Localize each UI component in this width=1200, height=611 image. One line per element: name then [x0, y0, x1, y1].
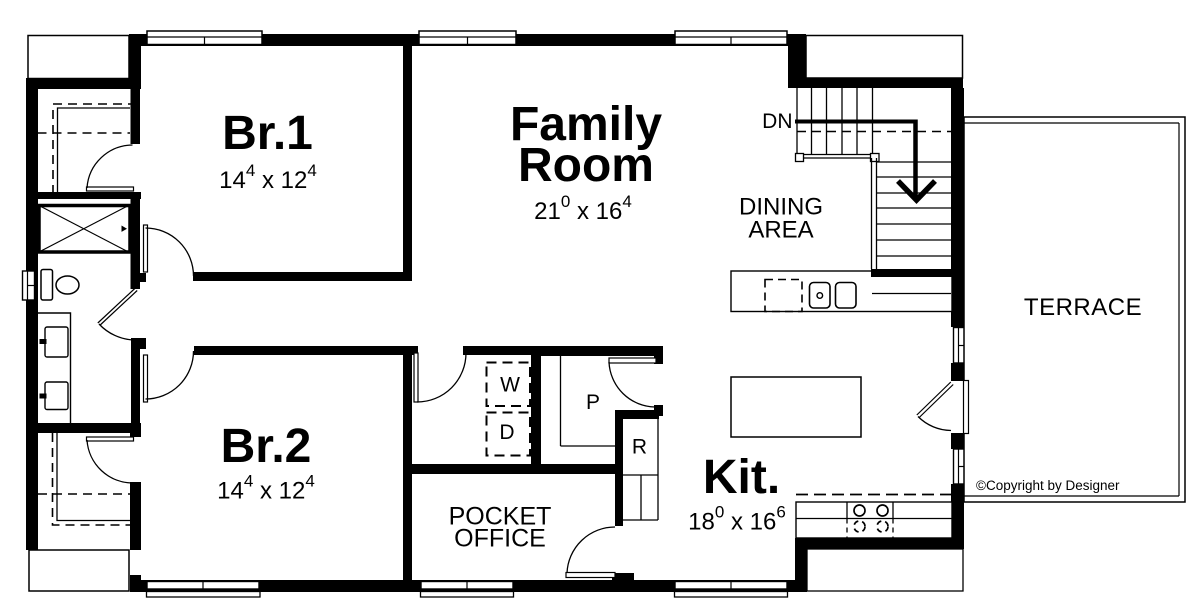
svg-text:P: P [586, 391, 600, 414]
svg-text:OFFICE: OFFICE [454, 525, 546, 553]
svg-text:Br.1: Br.1 [222, 107, 313, 160]
svg-text:TERRACE: TERRACE [1024, 294, 1142, 321]
svg-text:Br.2: Br.2 [221, 420, 312, 473]
svg-text:AREA: AREA [748, 217, 813, 244]
svg-text:W: W [500, 374, 520, 397]
svg-text:©Copyright by Designer: ©Copyright by Designer [976, 478, 1120, 493]
svg-text:Room: Room [518, 139, 654, 192]
svg-text:DN: DN [762, 110, 792, 133]
svg-text:Kit.: Kit. [703, 451, 780, 504]
svg-text:D: D [499, 421, 514, 444]
svg-text:R: R [632, 436, 647, 459]
